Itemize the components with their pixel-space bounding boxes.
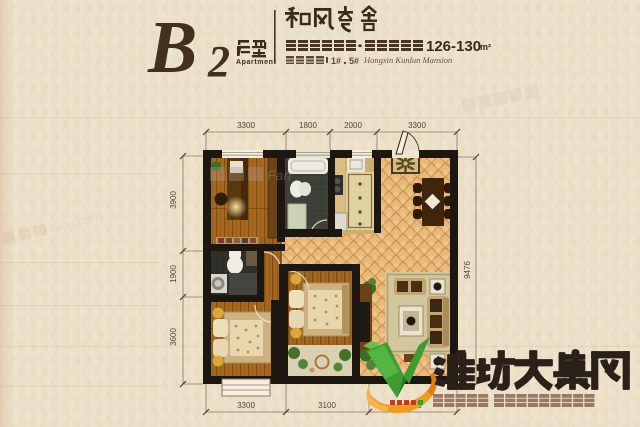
svg-text:B: B (147, 7, 197, 89)
svg-text:1800: 1800 (299, 121, 317, 130)
svg-text:2: 2 (207, 37, 230, 86)
svg-text:2000: 2000 (344, 121, 362, 130)
svg-text:1#: 1# (331, 56, 341, 66)
svg-text:5#: 5# (349, 56, 359, 66)
svg-text:Hongxin Kunlun Mansion: Hongxin Kunlun Mansion (363, 55, 452, 65)
svg-text:3300: 3300 (408, 121, 426, 130)
svg-text:3900: 3900 (169, 191, 178, 209)
svg-text:9476: 9476 (463, 261, 472, 279)
svg-text:1900: 1900 (169, 265, 178, 283)
svg-text:Fang.com: Fang.com (49, 212, 99, 235)
svg-text:3100: 3100 (318, 401, 336, 410)
svg-text:Apartment: Apartment (236, 59, 276, 66)
svg-text:m²: m² (480, 42, 491, 52)
svg-text:3600: 3600 (169, 328, 178, 346)
svg-text:Fan: Fan (267, 167, 291, 183)
svg-text:3300: 3300 (237, 121, 255, 130)
svg-text:126-130: 126-130 (426, 38, 481, 55)
svg-text:3300: 3300 (237, 401, 255, 410)
